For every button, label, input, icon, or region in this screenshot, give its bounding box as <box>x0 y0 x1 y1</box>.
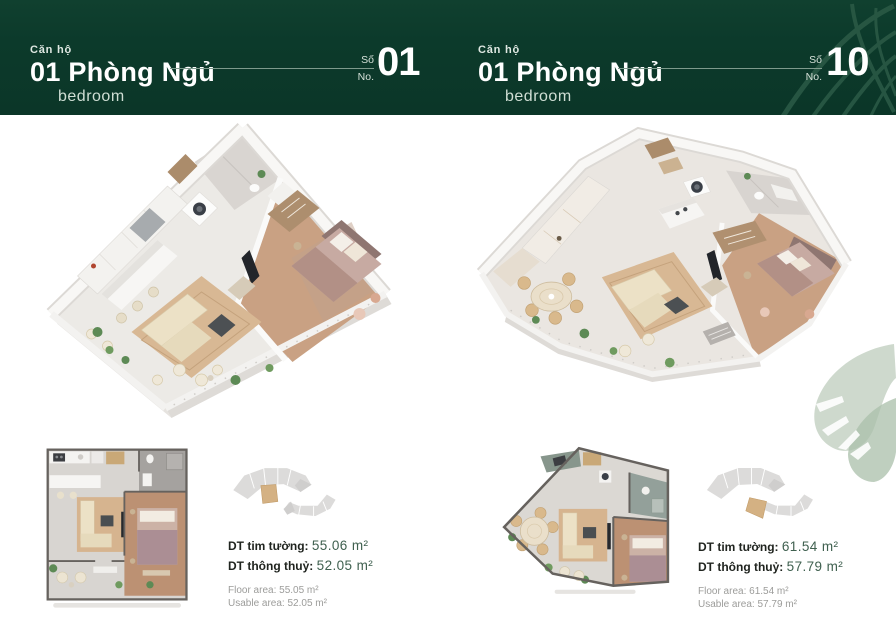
toilet <box>642 487 650 495</box>
entry-mat <box>106 451 124 464</box>
bedroom-chair <box>354 308 366 320</box>
coffee-table <box>101 515 114 526</box>
built-area-label: DT tim tường: <box>228 539 309 553</box>
area-info-english: Floor area: 55.05 m² Usable area: 52.05 … <box>228 585 438 610</box>
unit10-header: Căn hộ 01 Phòng Ngủ bedroom Số No. 10 <box>448 0 896 115</box>
usable-area-en: Usable area: 52.05 m² <box>228 598 438 611</box>
blanket <box>137 530 177 565</box>
header-band: Căn hộ 01 Phòng Ngủ bedroom Số No. 01 Că… <box>0 0 896 115</box>
unit01-so-label: Số <box>332 54 374 66</box>
net-area-value: 57.79 m² <box>787 559 843 574</box>
usable-area-en: Usable area: 57.79 m² <box>698 599 896 612</box>
building-wing-lower <box>761 494 814 517</box>
cooktop <box>557 236 562 241</box>
unit10-building-keyplan <box>696 460 822 524</box>
unit01-3d-floorplan <box>28 118 406 418</box>
coffee-table <box>583 527 596 538</box>
net-area-value: 52.05 m² <box>317 558 373 573</box>
armchair <box>174 364 186 376</box>
building-wing-lower <box>283 494 336 517</box>
bathroom-plant <box>258 170 266 178</box>
net-area-label: DT thông thuỷ: <box>228 559 313 573</box>
unit01-header-rule <box>170 68 374 69</box>
unit10-so-label: Số <box>780 54 822 66</box>
unit01-2d-floorplan <box>40 446 196 614</box>
nightstand <box>744 271 752 279</box>
cooking-pot <box>91 264 96 269</box>
bench <box>143 570 170 575</box>
fridge <box>92 451 104 463</box>
cooktop <box>53 453 65 461</box>
highlighted-unit-10 <box>746 498 767 519</box>
net-area-line: DT thông thuỷ: 52.05 m² <box>228 558 438 573</box>
unit10-2d-floorplan <box>494 442 676 594</box>
tv <box>607 523 611 549</box>
unit10-header-rule <box>618 68 822 69</box>
plant <box>49 564 57 572</box>
toilet <box>146 454 153 463</box>
dining-table <box>520 517 548 545</box>
unit01-building-keyplan <box>227 462 339 526</box>
dining-chair <box>518 277 531 290</box>
toilet <box>250 184 260 192</box>
shower <box>166 453 182 469</box>
kitchen-island <box>50 475 101 488</box>
built-area-line: DT tim tường: 55.06 m² <box>228 538 438 553</box>
bar-stool <box>117 313 127 323</box>
toilet <box>754 192 764 200</box>
blanket <box>629 555 665 581</box>
unit01-no-label: No. <box>332 71 374 83</box>
built-area-label: DT tim tường: <box>698 540 779 554</box>
plant <box>580 329 590 339</box>
armchair <box>643 333 655 345</box>
highlighted-unit-01 <box>261 485 278 504</box>
unit10-no-label: No. <box>780 71 822 83</box>
floor-area-en: Floor area: 61.54 m² <box>698 586 896 599</box>
unit01-subtitle: bedroom <box>58 88 125 106</box>
unit10-title: 01 Phòng Ngủ <box>478 57 663 88</box>
unit01-eyebrow: Căn hộ <box>30 44 72 56</box>
unit10-eyebrow: Căn hộ <box>478 44 520 56</box>
built-area-value: 61.54 m² <box>782 539 838 554</box>
unit10-number: 10 <box>826 45 869 79</box>
area-info-english: Floor area: 61.54 m² Usable area: 57.79 … <box>698 586 896 611</box>
vanity <box>143 473 152 486</box>
built-area-line: DT tim tường: 61.54 m² <box>698 539 896 554</box>
unit10-area-info: DT tim tường: 61.54 m² DT thông thuỷ: 57… <box>698 539 896 611</box>
unit01-area-info: DT tim tường: 55.06 m² DT thông thuỷ: 52… <box>228 538 438 610</box>
stool <box>57 492 64 499</box>
balcony-chair <box>57 572 68 583</box>
unit10-3d-floorplan <box>462 120 862 382</box>
planter <box>93 567 117 573</box>
brochure-page: Căn hộ 01 Phòng Ngủ bedroom Số No. 01 Că… <box>0 0 896 640</box>
unit01-title: 01 Phòng Ngủ <box>30 57 215 88</box>
building-wing-upper <box>706 468 785 500</box>
net-area-line: DT thông thuỷ: 57.79 m² <box>698 559 896 574</box>
shower <box>652 499 664 513</box>
unit01-number: 01 <box>377 45 420 79</box>
net-area-label: DT thông thuỷ: <box>698 560 783 574</box>
balcony-chair <box>196 374 208 386</box>
pillows <box>140 511 175 522</box>
plan-shadow <box>53 603 181 608</box>
built-area-value: 55.06 m² <box>312 538 368 553</box>
unit01-header: Căn hộ 01 Phòng Ngủ bedroom Số No. 01 <box>0 0 448 115</box>
bedroom-stool <box>760 307 770 317</box>
plan-shadow <box>555 590 636 594</box>
pillows <box>633 538 663 548</box>
plant <box>93 327 103 337</box>
bathroom-plant <box>744 173 751 180</box>
sink <box>78 454 83 459</box>
nightstand <box>294 242 302 250</box>
unit10-subtitle: bedroom <box>505 88 572 106</box>
floor-area-en: Floor area: 55.05 m² <box>228 585 438 598</box>
